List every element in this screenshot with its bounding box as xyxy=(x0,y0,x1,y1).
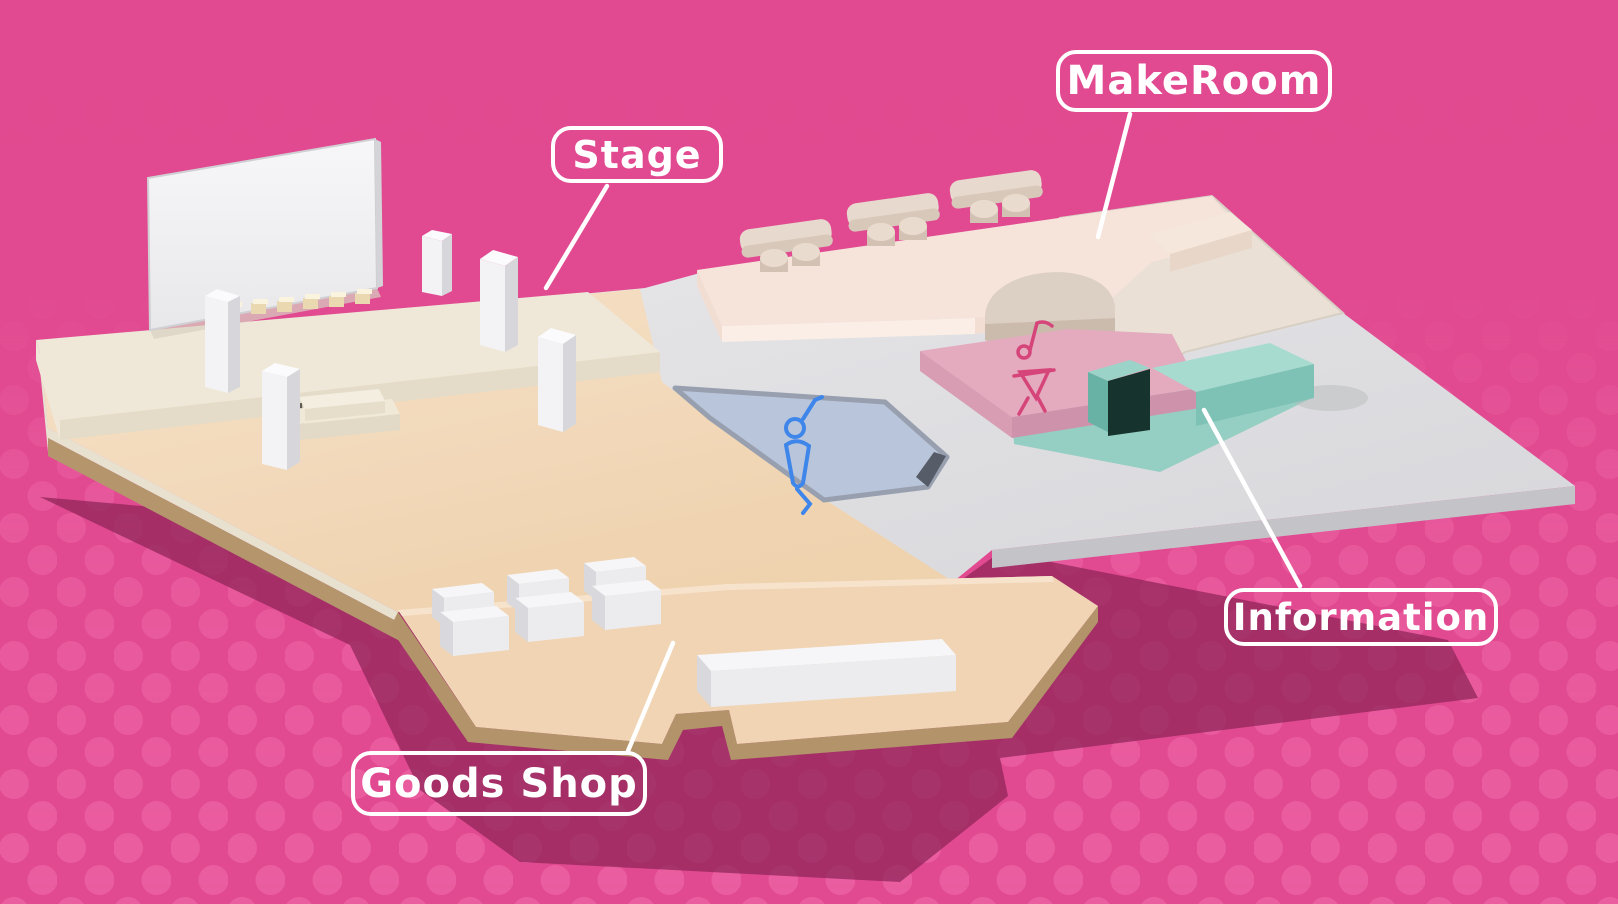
pillar xyxy=(538,328,576,432)
side-panel xyxy=(422,230,452,296)
makeroom-label: MakeRoom xyxy=(1056,50,1332,112)
goods-shop-label-text: Goods Shop xyxy=(360,761,638,807)
makeroom-label-text: MakeRoom xyxy=(1067,58,1322,104)
information-label-text: Information xyxy=(1233,596,1490,639)
goods-shop-label: Goods Shop xyxy=(351,751,647,816)
pillar xyxy=(480,250,518,352)
venue-3d-map xyxy=(0,0,1618,904)
pillar xyxy=(262,363,300,470)
stage-label: Stage xyxy=(551,126,723,183)
stage-label-text: Stage xyxy=(572,133,701,177)
pillar xyxy=(205,289,240,393)
information-label: Information xyxy=(1224,588,1498,646)
venue-map: Stage MakeRoom Information Goods Shop xyxy=(0,0,1618,904)
